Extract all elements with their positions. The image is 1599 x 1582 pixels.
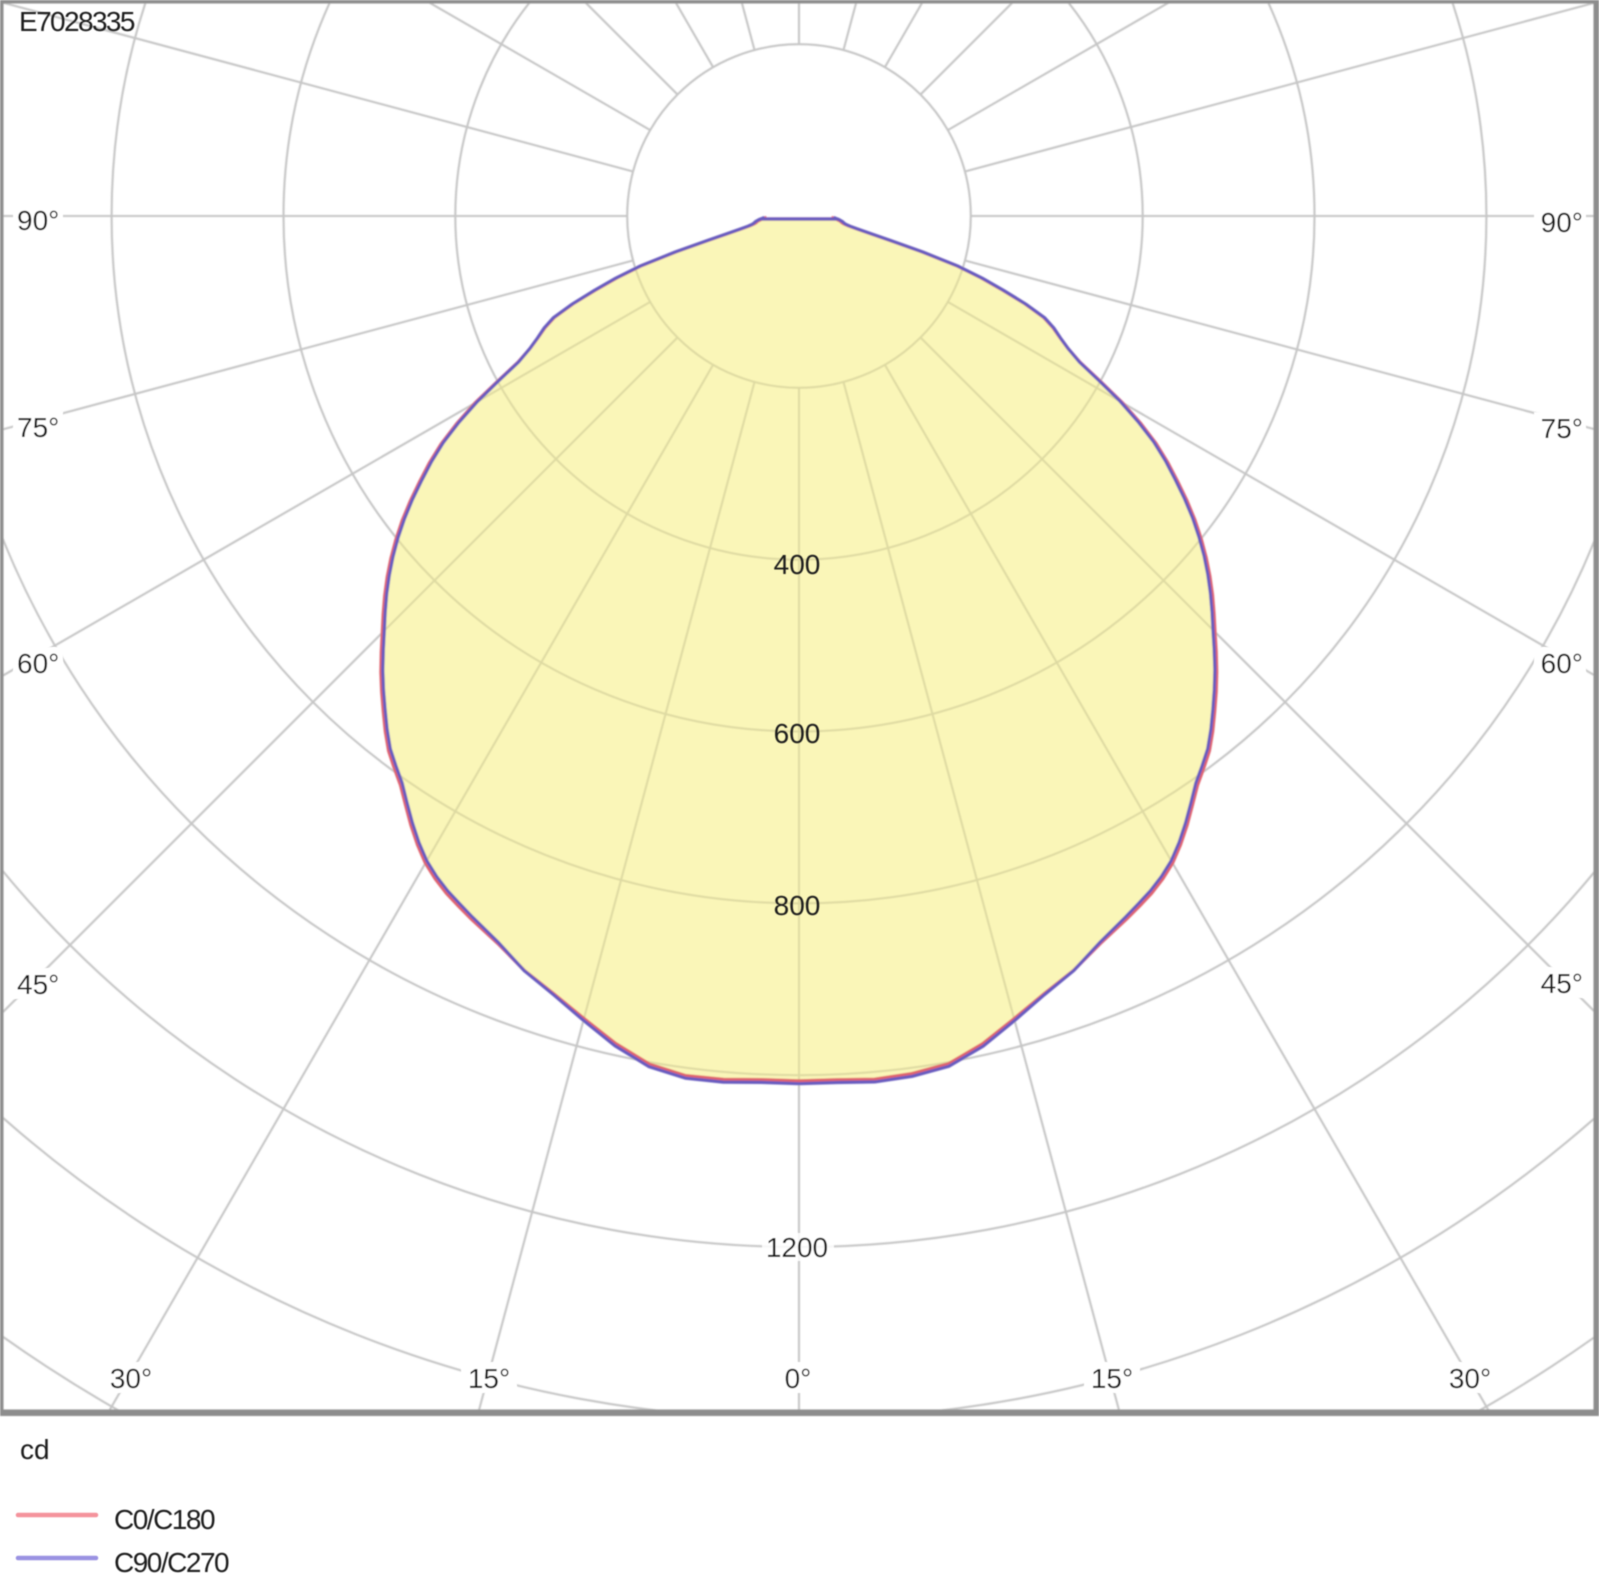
svg-text:60°: 60° (1541, 648, 1583, 679)
svg-text:0°: 0° (785, 1363, 812, 1394)
svg-text:1200: 1200 (766, 1232, 828, 1263)
svg-text:400: 400 (774, 549, 821, 580)
svg-text:15°: 15° (468, 1363, 510, 1394)
svg-text:15°: 15° (1091, 1363, 1133, 1394)
svg-text:cd: cd (20, 1434, 50, 1465)
svg-text:75°: 75° (17, 412, 59, 443)
svg-text:C90/C270: C90/C270 (114, 1547, 229, 1578)
svg-text:30°: 30° (1449, 1363, 1491, 1394)
svg-text:90°: 90° (1541, 207, 1583, 238)
svg-text:45°: 45° (17, 969, 59, 1000)
svg-text:E7028335: E7028335 (19, 6, 135, 37)
svg-text:75°: 75° (1541, 413, 1583, 444)
svg-text:30°: 30° (110, 1363, 152, 1394)
svg-text:45°: 45° (1541, 968, 1583, 999)
svg-text:90°: 90° (17, 205, 59, 236)
svg-text:C0/C180: C0/C180 (114, 1504, 215, 1535)
svg-text:800: 800 (774, 890, 821, 921)
svg-text:60°: 60° (17, 648, 59, 679)
svg-text:600: 600 (774, 718, 821, 749)
